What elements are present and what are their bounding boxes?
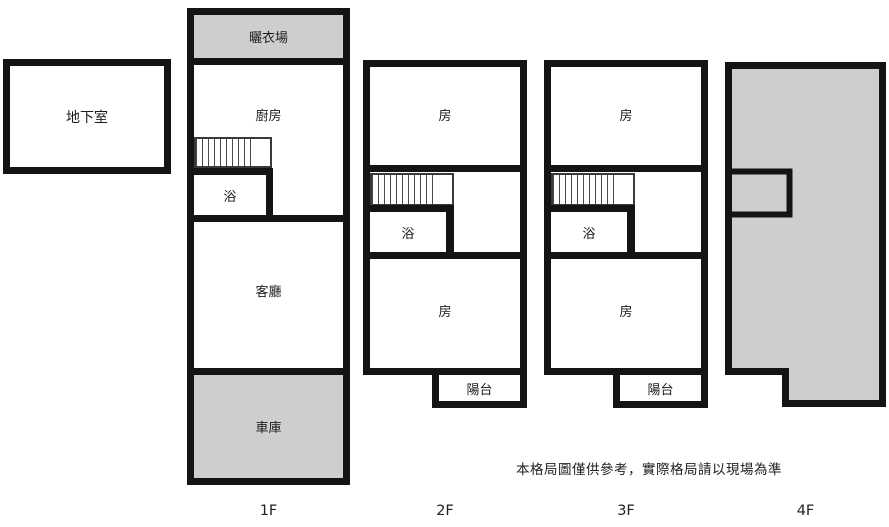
laundry-label: 曬衣場 — [249, 27, 288, 46]
bath-2f-right-wall — [446, 205, 454, 259]
wall-segment — [194, 368, 343, 375]
bath-2f-label: 浴 — [401, 223, 414, 242]
bath-1f-right-wall — [266, 168, 273, 222]
garage-label: 車庫 — [255, 417, 281, 436]
stair-treads-2f — [372, 175, 438, 204]
wall-segment — [551, 165, 701, 172]
floor-1-inner: 曬衣場 廚房 浴 客廳 車庫 — [194, 15, 343, 478]
disclaimer-text: 本格局圖僅供參考，實際格局請以現場為準 — [516, 458, 782, 478]
basement-room: 地下室 — [3, 59, 171, 174]
stairs-1f — [194, 137, 272, 168]
bath-3f-right-wall — [627, 205, 635, 259]
balcony-2f-label: 陽台 — [466, 379, 492, 398]
balcony-3f: 陽台 — [613, 368, 708, 408]
stairs-3f — [551, 173, 635, 206]
floor-1-column: 曬衣場 廚房 浴 客廳 車庫 — [187, 8, 350, 485]
bath-2f-top-wall — [370, 205, 454, 212]
floor-label-2f: 2F — [363, 503, 527, 523]
wall-segment — [194, 58, 343, 65]
floor-plan-canvas: 地下室 曬衣場 廚房 浴 客廳 — [0, 0, 889, 527]
bath-3f-label: 浴 — [582, 223, 595, 242]
bath-2f-room: 浴 — [370, 212, 446, 252]
wall-segment — [370, 165, 520, 172]
floor-3-inner: 房 浴 房 — [551, 67, 701, 368]
floor-4-shape — [722, 59, 889, 410]
stair-treads-1f — [196, 139, 256, 166]
f2-room-top-label: 房 — [370, 107, 520, 127]
floor-label-1f: 1F — [187, 503, 350, 523]
wall-segment — [551, 252, 701, 259]
floor-3-column: 房 浴 房 — [544, 60, 708, 375]
garage-room: 車庫 — [194, 375, 343, 478]
bath-1f-label: 浴 — [223, 186, 236, 205]
bath-1f-room: 浴 — [194, 175, 266, 215]
living-room-label: 客廳 — [194, 283, 343, 303]
floor-label-3f: 3F — [544, 503, 708, 523]
floor-label-4f: 4F — [722, 503, 889, 523]
stair-treads-3f — [553, 175, 619, 204]
laundry-room: 曬衣場 — [194, 15, 343, 58]
floor-2-column: 房 浴 房 — [363, 60, 527, 375]
basement-label: 地下室 — [66, 107, 108, 127]
floor-4-outline — [729, 66, 883, 404]
f3-room-top-label: 房 — [551, 107, 701, 127]
bath-3f-room: 浴 — [551, 212, 627, 252]
floor-2-inner: 房 浴 房 — [370, 67, 520, 368]
wall-segment — [194, 215, 343, 222]
bath-1f-top-wall — [194, 168, 273, 175]
stairs-2f — [370, 173, 454, 206]
f2-room-bottom-label: 房 — [370, 303, 520, 323]
f3-room-bottom-label: 房 — [551, 303, 701, 323]
balcony-2f: 陽台 — [432, 368, 527, 408]
wall-segment — [370, 252, 520, 259]
bath-3f-top-wall — [551, 205, 635, 212]
kitchen-label: 廚房 — [194, 107, 343, 127]
balcony-3f-label: 陽台 — [647, 379, 673, 398]
